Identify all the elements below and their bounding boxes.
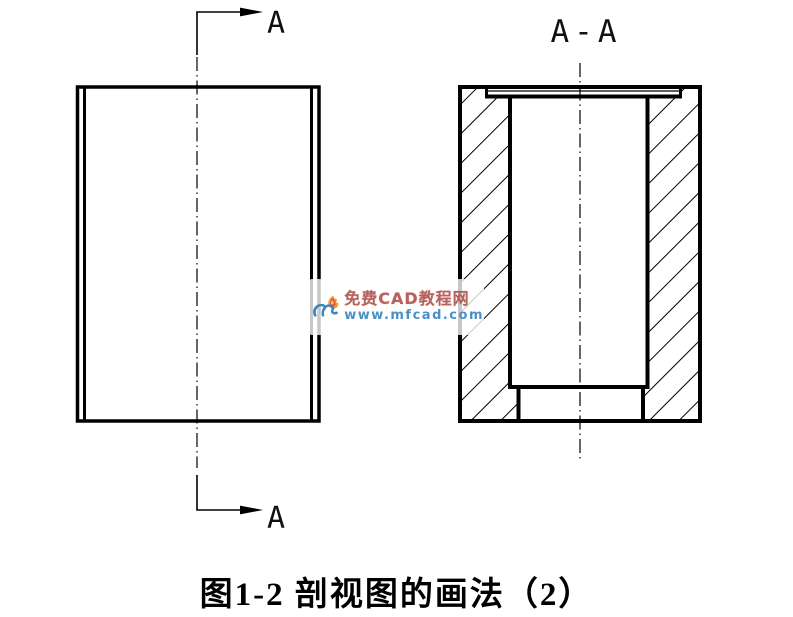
swoosh-icon	[314, 305, 336, 315]
cutting-label-top: A	[267, 6, 285, 41]
cutting-label-bottom: A	[267, 501, 285, 536]
cutting-line-top	[197, 12, 256, 55]
hatch-region-right-wall	[645, 88, 698, 419]
view-direction-arrow-top	[240, 8, 263, 17]
section-view: A-A	[460, 14, 700, 462]
cutting-plane-top: A	[197, 6, 285, 55]
figure-caption: 图1-2 剖视图的画法（2）	[0, 567, 793, 615]
section-view-title: A-A	[551, 14, 622, 50]
watermark: 免费CAD教程网 www.mfcad.com	[308, 279, 484, 335]
watermark-logo	[312, 281, 340, 333]
cutting-line-bottom	[197, 475, 256, 510]
front-view	[78, 57, 320, 468]
view-direction-arrow-bottom	[240, 506, 263, 515]
front-view-outline	[78, 87, 320, 421]
figure-canvas: A A A-A	[0, 0, 793, 617]
watermark-site-url: www.mfcad.com	[344, 308, 484, 324]
watermark-site-name: 免费CAD教程网	[344, 290, 484, 308]
cutting-plane-bottom: A	[197, 475, 285, 536]
